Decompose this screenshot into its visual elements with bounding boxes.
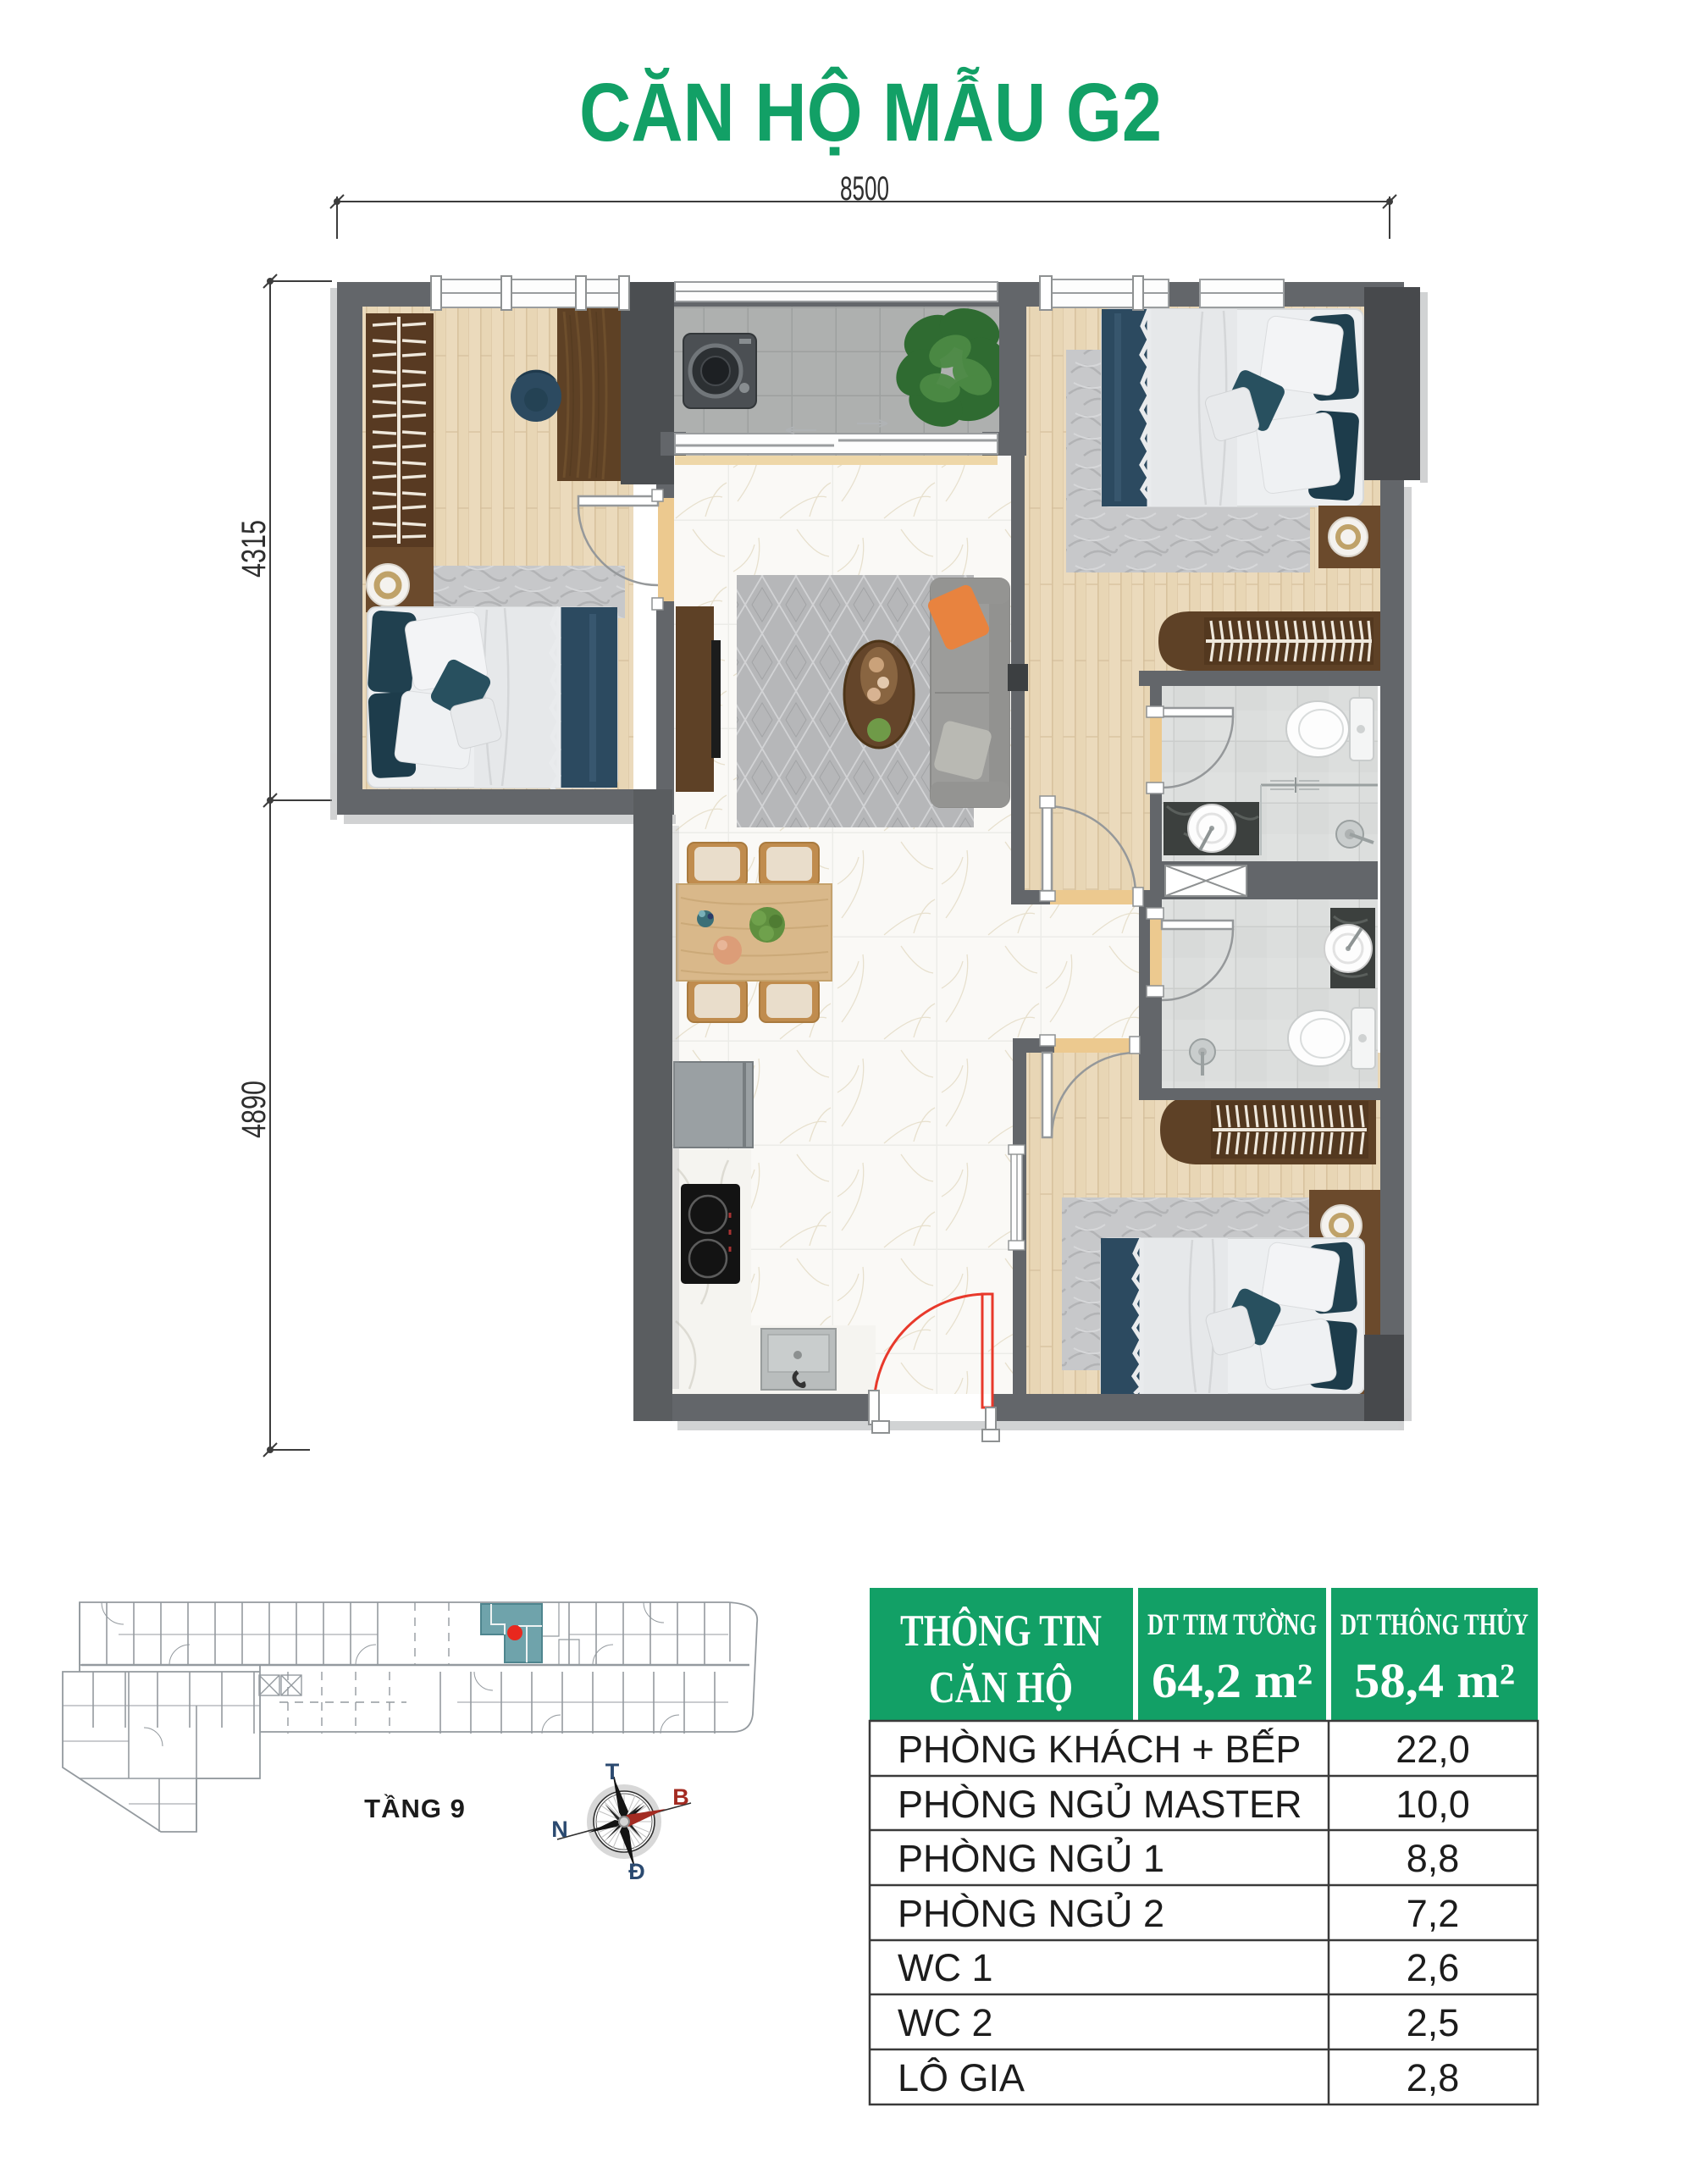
svg-text:58,4 m²: 58,4 m²: [1354, 1653, 1515, 1708]
svg-text:2,5: 2,5: [1407, 2001, 1460, 2044]
svg-text:DT TIM TƯỜNG: DT TIM TƯỜNG: [1147, 1607, 1317, 1641]
svg-text:DT THÔNG THỦY: DT THÔNG THỦY: [1340, 1607, 1528, 1641]
svg-text:PHÒNG KHÁCH + BẾP: PHÒNG KHÁCH + BẾP: [898, 1728, 1301, 1771]
svg-text:64,2 m²: 64,2 m²: [1152, 1653, 1313, 1708]
svg-text:Đ: Đ: [628, 1859, 645, 1884]
svg-text:LÔ GIA: LÔ GIA: [898, 2056, 1025, 2099]
svg-text:T: T: [605, 1759, 620, 1784]
svg-text:7,2: 7,2: [1407, 1892, 1460, 1935]
svg-text:TẦNG 9: TẦNG 9: [364, 1794, 466, 1823]
svg-text:22,0: 22,0: [1396, 1728, 1470, 1771]
svg-text:WC 2: WC 2: [898, 2001, 993, 2044]
svg-text:4315: 4315: [235, 520, 273, 578]
svg-text:CĂN HỘ: CĂN HỘ: [929, 1663, 1073, 1712]
svg-text:N: N: [551, 1817, 568, 1842]
svg-text:10,0: 10,0: [1396, 1783, 1470, 1826]
svg-text:WC 1: WC 1: [898, 1946, 993, 1989]
svg-text:2,8: 2,8: [1407, 2056, 1460, 2099]
svg-text:PHÒNG NGỦ 2: PHÒNG NGỦ 2: [898, 1892, 1164, 1935]
svg-text:8500: 8500: [840, 170, 889, 207]
svg-text:2,6: 2,6: [1407, 1946, 1460, 1989]
svg-text:THÔNG TIN: THÔNG TIN: [900, 1607, 1102, 1656]
svg-text:8,8: 8,8: [1407, 1837, 1460, 1880]
svg-text:B: B: [672, 1784, 689, 1810]
svg-text:4890: 4890: [235, 1081, 273, 1138]
svg-text:PHÒNG NGỦ 1: PHÒNG NGỦ 1: [898, 1837, 1164, 1880]
svg-text:PHÒNG NGỦ MASTER: PHÒNG NGỦ MASTER: [898, 1783, 1302, 1826]
svg-text:CĂN HỘ MẪU G2: CĂN HỘ MẪU G2: [579, 66, 1162, 158]
